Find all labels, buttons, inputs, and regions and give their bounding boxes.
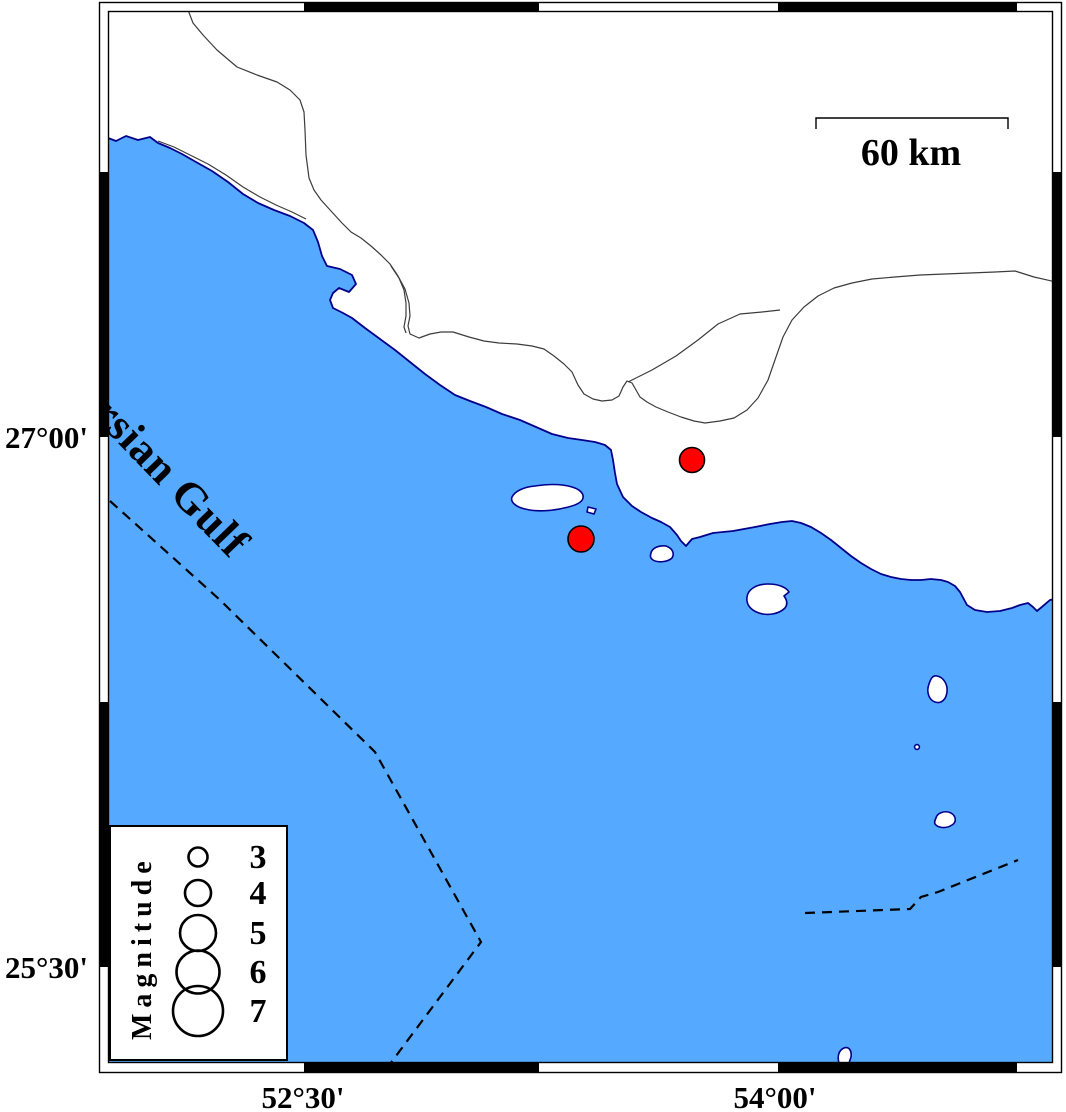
island-cove [650, 546, 673, 562]
frame-segment [99, 172, 109, 437]
lat-label-top: 27°00' [5, 420, 88, 455]
frame-segment [304, 1063, 539, 1073]
legend-value: 4 [250, 875, 267, 912]
frame-segment [304, 2, 539, 12]
legend-value: 6 [250, 954, 267, 991]
epicenter-marker [680, 448, 705, 473]
islet-bottom-edge [838, 1048, 851, 1063]
magnitude-legend: Magnitude 34567 [110, 826, 287, 1060]
frame-segment [778, 2, 1017, 12]
lat-label-bottom: 25°30' [5, 950, 88, 985]
lon-label-right: 54°00' [733, 1080, 816, 1112]
legend-value: 5 [250, 915, 267, 952]
seismicity-map-figure: Persian Gulf Magnitude 34567 60 km 27°00… [0, 0, 1066, 1112]
legend-value: 7 [250, 993, 267, 1030]
frame-segment [99, 702, 109, 967]
island-round [747, 584, 789, 614]
island-small-south [935, 812, 956, 828]
islet-dot [915, 745, 920, 750]
epicenter-marker [568, 526, 594, 552]
frame-segment [1052, 702, 1062, 967]
lon-label-left: 52°30' [261, 1080, 344, 1112]
island-small-east-tip [587, 507, 596, 514]
legend-value: 3 [250, 839, 267, 876]
scale-bar-label: 60 km [861, 132, 961, 174]
frame-segment [778, 1063, 1017, 1073]
frame-segment [1052, 172, 1062, 437]
legend-title: Magnitude [127, 855, 158, 1040]
island-teardrop [928, 676, 947, 703]
